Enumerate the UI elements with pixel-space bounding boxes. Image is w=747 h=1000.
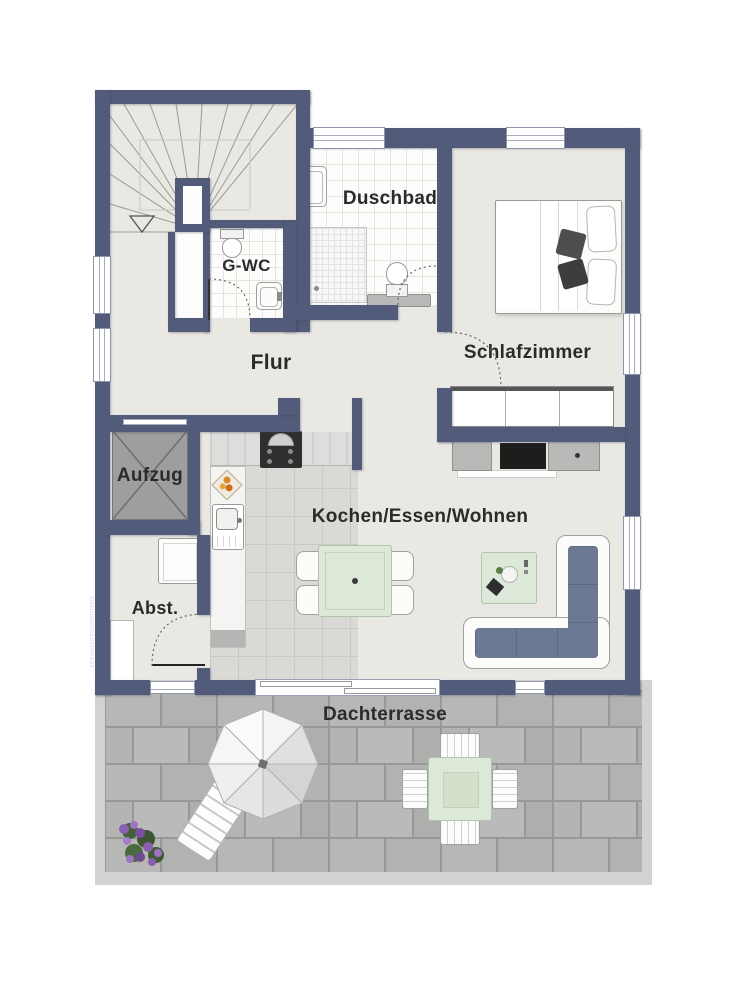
terrace-chair-left	[402, 769, 428, 809]
storage-shelf	[110, 620, 134, 682]
terrace-sliding-door	[255, 679, 440, 696]
wall-flur-kitchen-stub	[278, 398, 300, 415]
terrace-chair-top	[440, 733, 480, 759]
bed-duvet-fold	[540, 201, 559, 311]
room-label-schlafzimmer: Schlafzimmer	[455, 342, 600, 364]
wall-duschbad-bottom	[296, 305, 398, 320]
terrace-door-left	[150, 681, 195, 694]
wall-bottom-pier-1	[95, 680, 150, 695]
stair-direction-arrow	[130, 216, 154, 232]
wall-bottom-pier-4	[545, 680, 640, 695]
room-label-duschbad: Duschbad	[340, 188, 440, 210]
room-label-dachterrasse: Dachterrasse	[285, 704, 485, 726]
elevator-door	[123, 419, 187, 425]
wall-elevator-bottom	[105, 520, 200, 535]
terrace-chair-bottom	[440, 819, 480, 845]
wall-stairblock-bottom-left	[168, 318, 208, 332]
terrace-table	[428, 757, 492, 821]
stair-newel-core	[183, 186, 202, 224]
tv	[500, 443, 546, 469]
double-bed	[495, 200, 622, 314]
wardrobe	[450, 386, 614, 427]
dining-table	[318, 545, 392, 617]
bed-pillow-bottom	[586, 258, 617, 305]
wall-abst-right	[197, 535, 210, 615]
terrace-door-right	[515, 681, 545, 694]
abst-door-leaf	[152, 664, 205, 666]
wall-bottom-pier-2	[195, 680, 255, 695]
room-label-aufzug: Aufzug	[110, 465, 190, 487]
window-left-1	[93, 256, 111, 314]
gwc-toilet	[218, 229, 246, 259]
wall-schlafzimmer-bottom	[437, 427, 625, 442]
wall-stair-top	[95, 90, 310, 104]
stove-with-hood	[260, 431, 302, 468]
room-label-flur: Flur	[236, 351, 306, 375]
floorplan-canvas: Duschbad G-WC Flur Schlafzimmer Aufzug A…	[0, 0, 747, 1000]
sofa-cushion-horizontal	[475, 628, 598, 658]
duschbad-toilet	[384, 262, 410, 300]
tv-sideboard	[445, 440, 610, 480]
window-left-2	[93, 328, 111, 382]
kitchen-sink	[212, 504, 244, 550]
window-wohnen-right	[623, 516, 641, 590]
window-schlafzimmer-top	[506, 127, 565, 149]
flower-planter	[112, 815, 184, 871]
kitchen-base-cabinet	[211, 630, 245, 647]
room-label-gwc: G-WC	[210, 256, 283, 276]
wall-abst-right-stub	[197, 668, 210, 680]
wall-schlafzimmer-left-upper	[437, 148, 452, 332]
accent-pillow-2	[557, 258, 589, 290]
gwc-door-leaf	[208, 279, 210, 320]
shower	[303, 227, 367, 303]
wall-left	[95, 90, 110, 695]
watermark-text: dieGrundrissSchmiede	[88, 596, 94, 692]
wall-gwc-top	[205, 220, 283, 228]
window-duschbad	[313, 127, 385, 149]
wall-stairblock-bottom-right	[250, 318, 296, 332]
wall-kitchen-pillar	[352, 398, 362, 470]
terrace-chair-right	[492, 769, 518, 809]
wall-stair-right	[296, 90, 310, 332]
wall-stair-void-left	[168, 232, 175, 318]
wall-right	[625, 128, 640, 695]
bed-pillow-top	[586, 205, 617, 252]
washing-machine	[158, 538, 200, 584]
room-label-abst: Abst.	[120, 598, 190, 619]
wall-gwc-right	[283, 220, 296, 332]
stair-void	[175, 232, 203, 318]
window-schlafzimmer-right	[623, 313, 641, 375]
gwc-sink	[256, 282, 282, 310]
coffee-table	[481, 552, 537, 604]
room-label-kochen-essen-wohnen: Kochen/Essen/Wohnen	[305, 506, 535, 528]
wall-bottom-pier-3	[440, 680, 515, 695]
